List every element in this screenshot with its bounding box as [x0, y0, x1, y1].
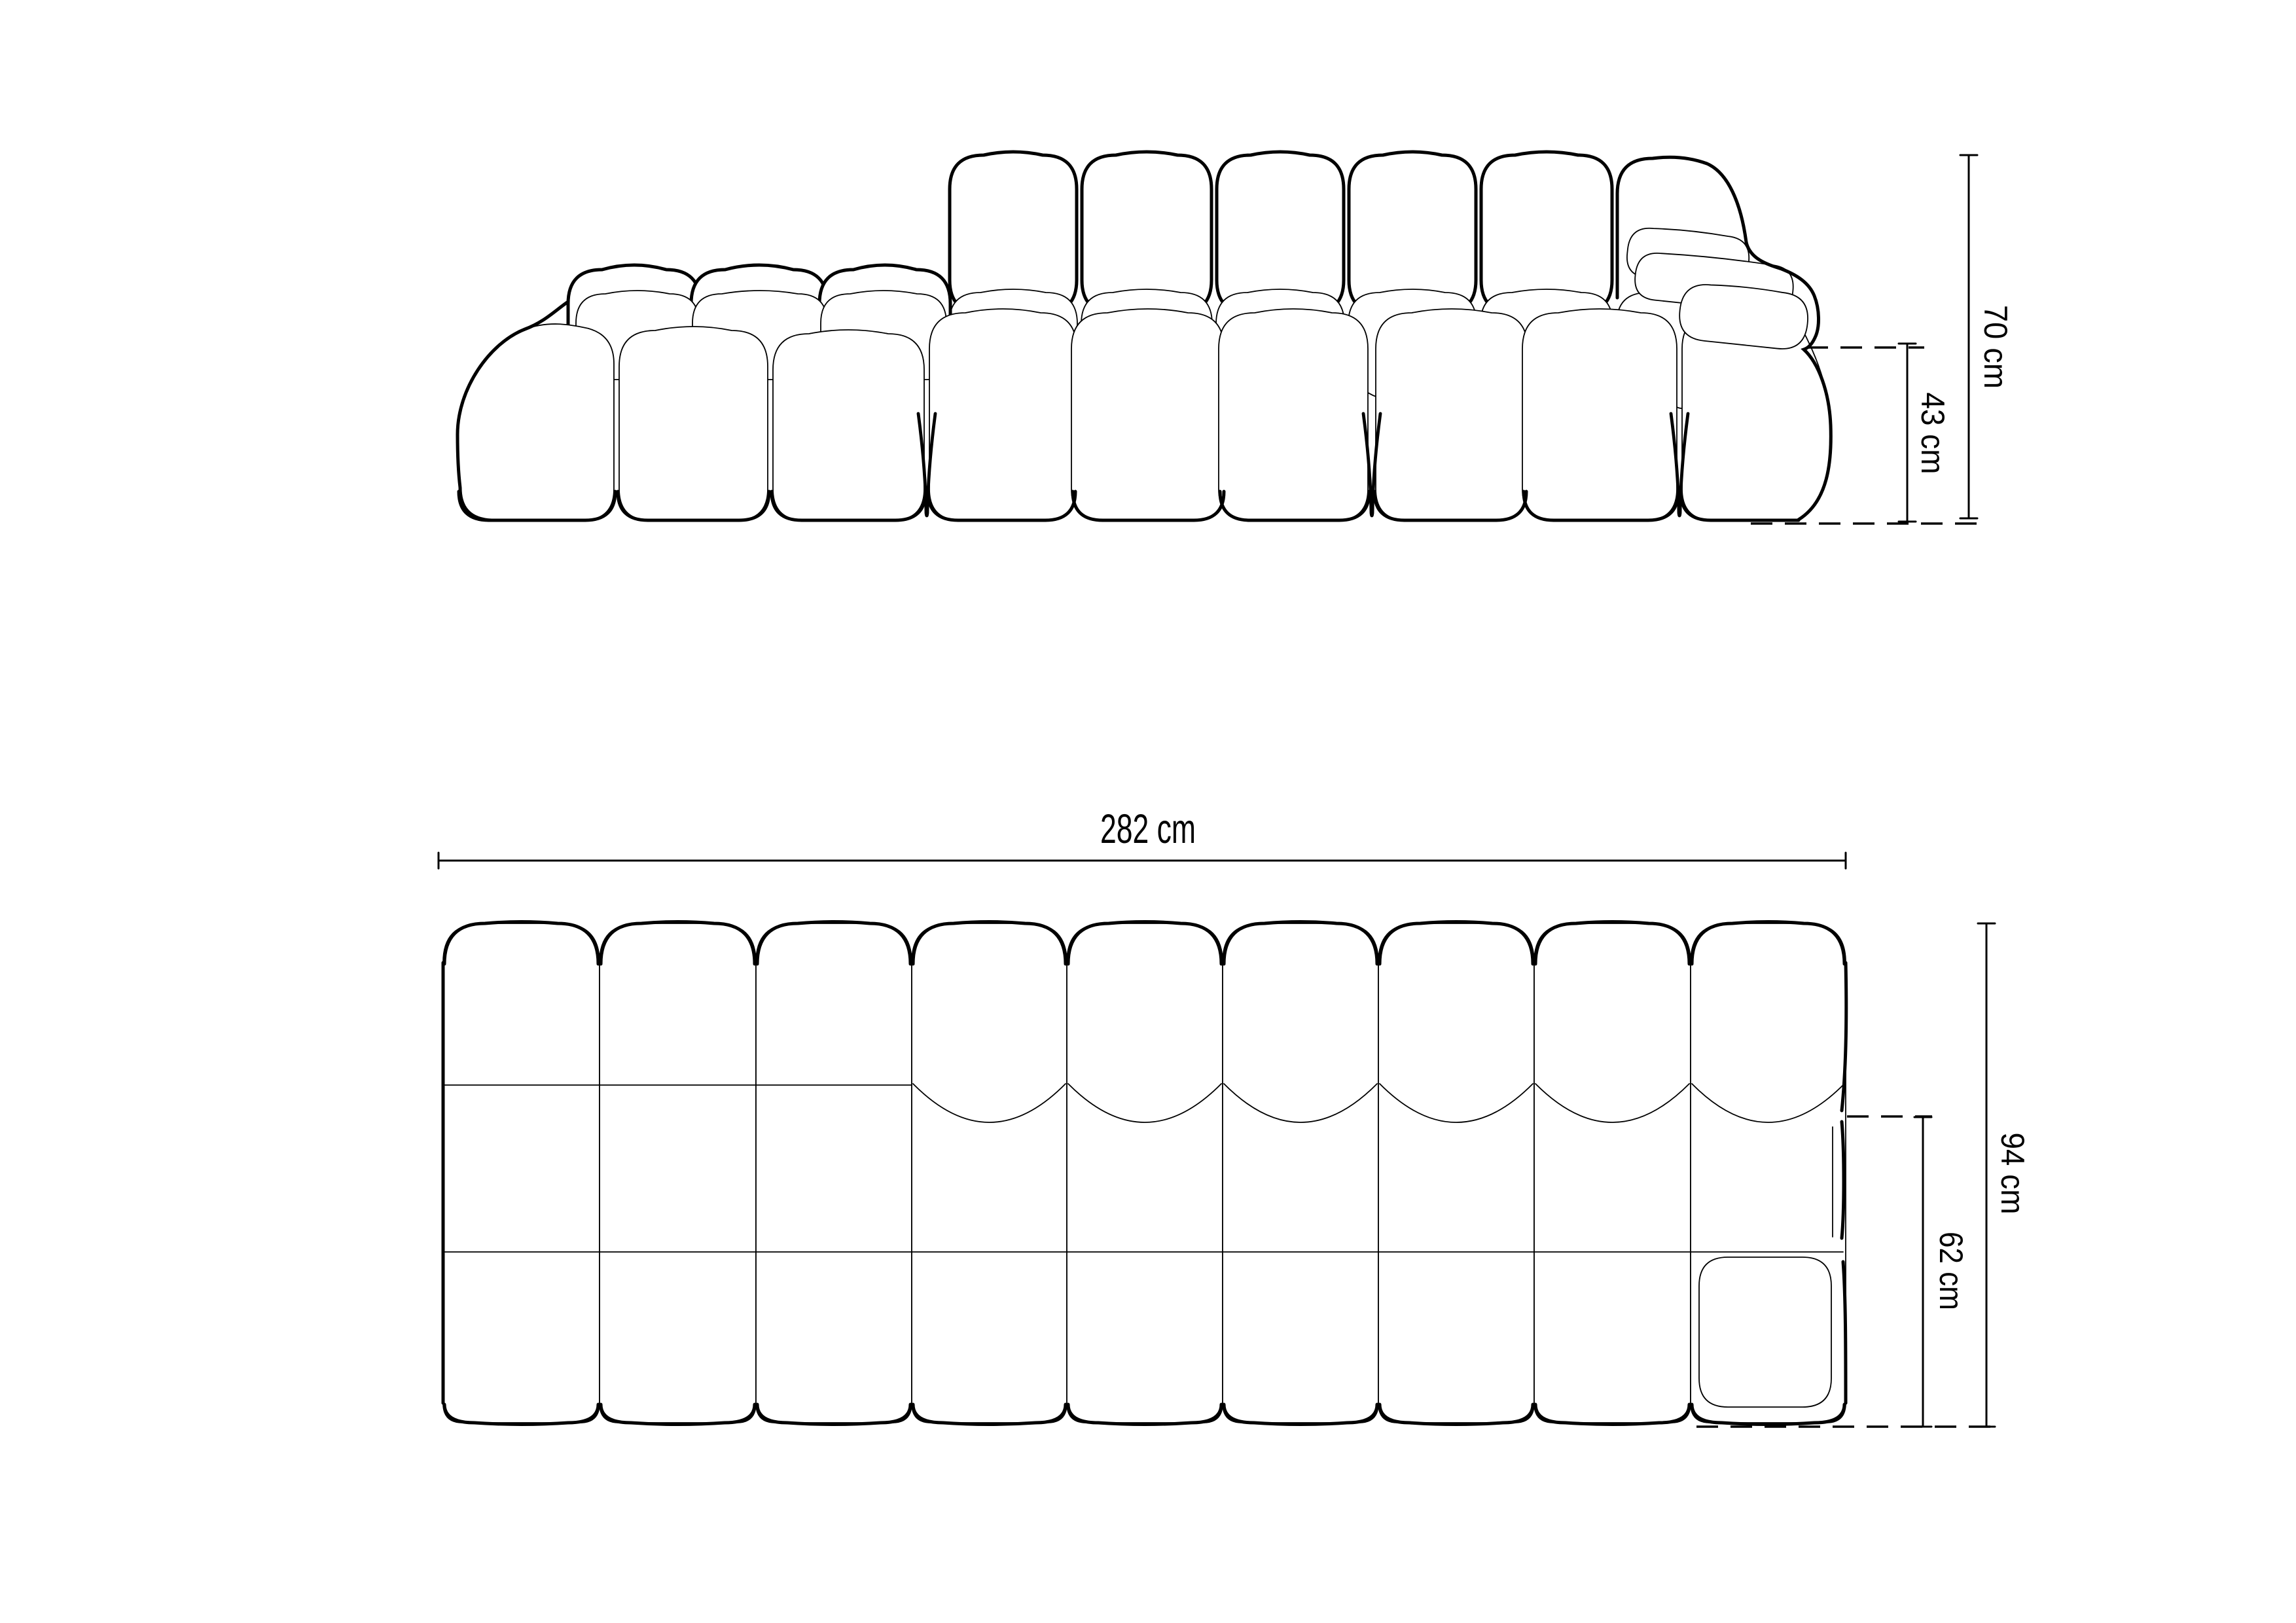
svg-text:282 cm: 282 cm [1100, 806, 1196, 852]
svg-text:70 cm: 70 cm [1977, 305, 2014, 389]
svg-text:94 cm: 94 cm [1994, 1133, 2031, 1215]
svg-text:62 cm: 62 cm [1933, 1232, 1969, 1310]
svg-text:43 cm: 43 cm [1914, 393, 1951, 474]
